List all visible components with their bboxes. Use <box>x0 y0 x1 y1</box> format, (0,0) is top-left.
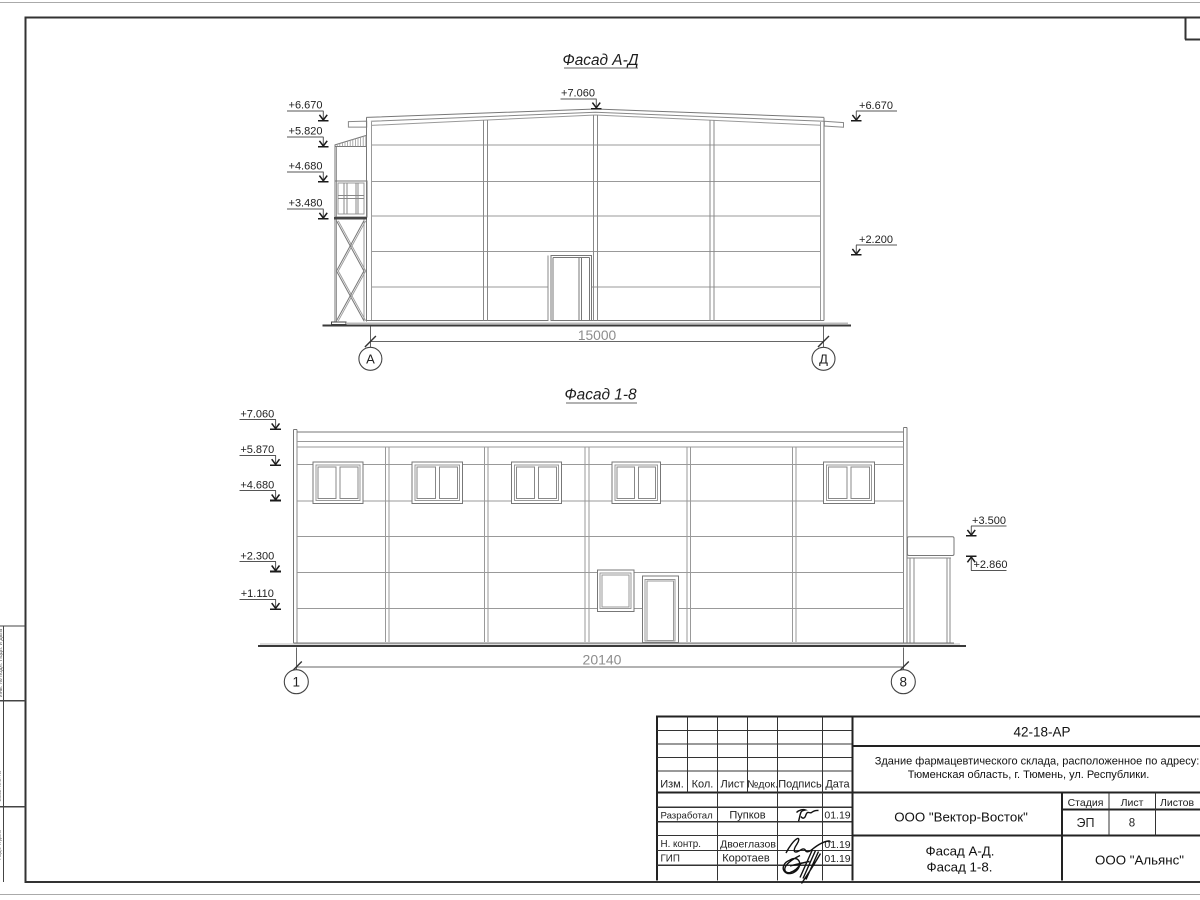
svg-text:Фасад 1-8: Фасад 1-8 <box>564 387 637 404</box>
svg-text:+6.670: +6.670 <box>859 100 893 112</box>
svg-text:Н. контр.: Н. контр. <box>661 839 701 850</box>
svg-text:Пупков: Пупков <box>729 809 765 821</box>
svg-text:Тюменская область, г. Тюмень,: Тюменская область, г. Тюмень, ул. Респуб… <box>908 769 1150 781</box>
svg-text:+5.820: +5.820 <box>289 126 323 138</box>
svg-text:+7.060: +7.060 <box>240 408 274 420</box>
svg-text:01.19: 01.19 <box>824 853 850 865</box>
svg-text:20140: 20140 <box>583 652 622 668</box>
svg-text:+1.110: +1.110 <box>241 588 274 600</box>
svg-text:Инв. № подл. Подп. и дата: Инв. № подл. Подп. и дата <box>0 628 4 697</box>
svg-text:1: 1 <box>293 675 301 690</box>
svg-text:Разработал: Разработал <box>661 810 713 821</box>
svg-text:Д: Д <box>819 352 828 367</box>
svg-text:Фасад 1-8.: Фасад 1-8. <box>927 859 993 874</box>
svg-text:Подпись: Подпись <box>778 779 822 791</box>
svg-text:+3.480: +3.480 <box>289 198 323 210</box>
svg-text:ООО "Альянс": ООО "Альянс" <box>1095 853 1184 868</box>
svg-text:Фасад А-Д.: Фасад А-Д. <box>926 843 995 858</box>
svg-text:8: 8 <box>1129 818 1135 830</box>
svg-text:Двоеглазов: Двоеглазов <box>720 838 776 850</box>
svg-text:Фасад А-Д: Фасад А-Д <box>562 52 638 69</box>
svg-text:ООО "Вектор-Восток": ООО "Вектор-Восток" <box>894 810 1028 825</box>
svg-text:+4.680: +4.680 <box>240 479 274 491</box>
svg-text:+7.060: +7.060 <box>561 88 595 100</box>
svg-text:8: 8 <box>900 675 908 690</box>
svg-text:ГИП: ГИП <box>661 853 680 864</box>
svg-text:ЭП: ЭП <box>1077 816 1095 830</box>
svg-text:01.19: 01.19 <box>824 809 850 821</box>
svg-text:Стадия: Стадия <box>1068 797 1104 809</box>
svg-text:Лист: Лист <box>721 779 745 791</box>
svg-text:Лист: Лист <box>1121 797 1144 809</box>
svg-text:А: А <box>366 352 375 367</box>
svg-text:Листов: Листов <box>1160 797 1195 809</box>
svg-text:+2.200: +2.200 <box>859 234 893 246</box>
svg-text:Кол.: Кол. <box>692 779 714 791</box>
svg-text:Взам. инв. №: Взам. инв. № <box>0 771 3 802</box>
svg-text:Подп. и дата: Подп. и дата <box>0 830 3 860</box>
svg-text:42-18-АР: 42-18-АР <box>1013 725 1070 740</box>
svg-text:+2.860: +2.860 <box>974 559 1008 571</box>
svg-text:+6.670: +6.670 <box>289 100 323 112</box>
svg-text:+2.300: +2.300 <box>240 550 274 562</box>
svg-text:+5.870: +5.870 <box>240 444 274 456</box>
svg-text:Коротаев: Коротаев <box>722 852 770 864</box>
svg-text:+4.680: +4.680 <box>289 161 323 173</box>
svg-text:15000: 15000 <box>578 328 617 343</box>
svg-text:Изм.: Изм. <box>660 779 684 791</box>
svg-text:Дата: Дата <box>825 779 850 791</box>
svg-text:+3.500: +3.500 <box>972 515 1006 527</box>
svg-text:Здание фармацевтического склад: Здание фармацевтического склада, располо… <box>875 756 1200 768</box>
svg-text:№док.: №док. <box>747 779 778 791</box>
